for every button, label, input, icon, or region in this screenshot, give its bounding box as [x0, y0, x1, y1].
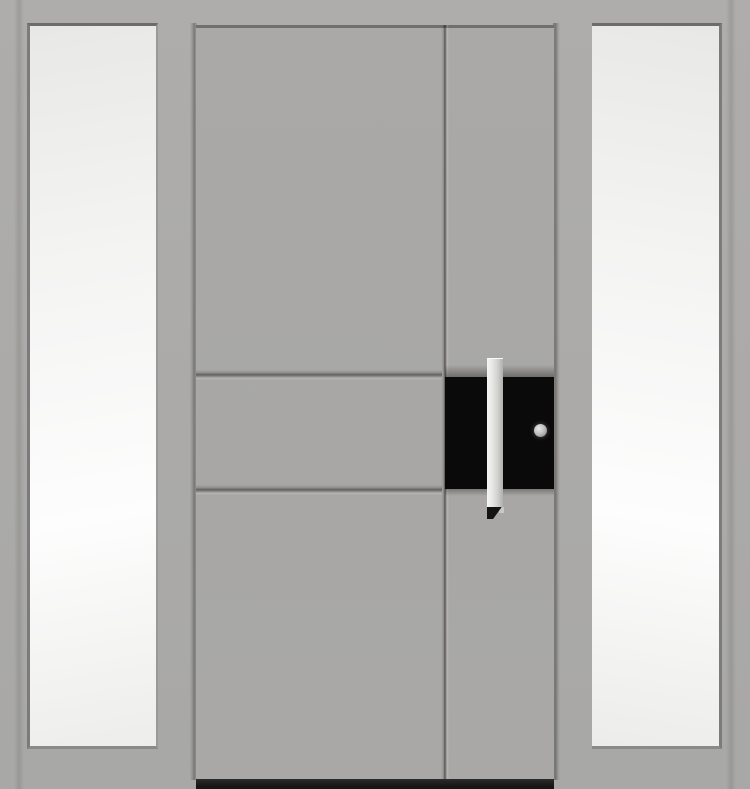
- lock-cylinder: [534, 424, 547, 437]
- door-handle-bar: [487, 358, 503, 507]
- frame-seam-left: [14, 0, 24, 789]
- lower-horizontal-groove: [196, 485, 442, 495]
- frame-seam-right: [726, 0, 736, 789]
- upper-horizontal-groove: [196, 370, 442, 380]
- left-sidelight-glass: [27, 23, 158, 749]
- right-sidelight-glass: [592, 23, 722, 749]
- door-assembly: [0, 0, 750, 789]
- door-gap-right: [553, 23, 560, 780]
- door-threshold: [196, 779, 554, 789]
